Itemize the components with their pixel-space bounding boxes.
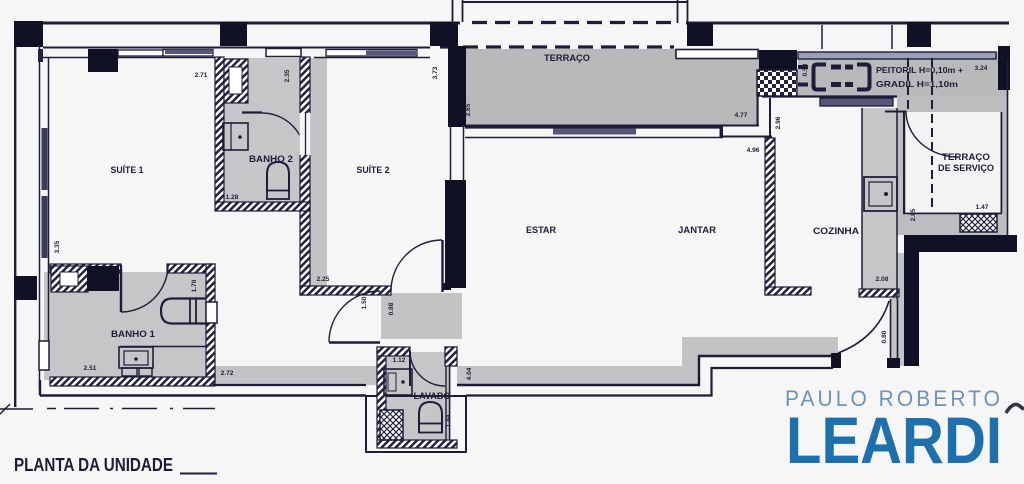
svg-text:3.73: 3.73 [432,66,439,79]
svg-text:2.35: 2.35 [284,69,291,82]
svg-text:TERRAÇO: TERRAÇO [544,53,590,64]
svg-text:BANHO 2: BANHO 2 [249,154,293,165]
svg-text:3.24: 3.24 [975,65,988,72]
svg-text:GRADIL H=1,10m: GRADIL H=1,10m [876,79,959,89]
svg-text:LAVABO: LAVABO [414,391,451,402]
svg-text:4.96: 4.96 [747,147,760,154]
svg-text:2.85: 2.85 [910,208,917,221]
svg-text:DE SERVIÇO: DE SERVIÇO [938,163,994,174]
svg-text:LEARDI: LEARDI [786,403,1002,477]
svg-text:2.25: 2.25 [317,276,330,283]
svg-text:COZINHA: COZINHA [813,226,859,237]
svg-text:PEITORIL H=0,10m +: PEITORIL H=0,10m + [876,65,963,75]
svg-text:2.72: 2.72 [221,370,234,377]
svg-text:0.88: 0.88 [388,302,395,315]
svg-text:SUÍTE 2: SUÍTE 2 [357,165,390,176]
svg-text:2.08: 2.08 [876,276,889,283]
svg-text:4.77: 4.77 [735,112,748,119]
svg-text:4.04: 4.04 [466,367,473,380]
svg-text:2.51: 2.51 [84,365,97,372]
svg-text:1.28: 1.28 [226,194,239,201]
svg-text:JANTAR: JANTAR [678,225,716,236]
svg-text:3.35: 3.35 [54,240,61,253]
svg-text:TERRAÇO: TERRAÇO [942,152,990,163]
svg-text:2.96: 2.96 [775,116,782,129]
svg-text:1.50: 1.50 [361,296,368,309]
svg-text:1.78: 1.78 [191,279,198,292]
svg-text:0.58: 0.58 [802,63,809,76]
svg-text:1.44: 1.44 [445,414,452,427]
svg-text:0.80: 0.80 [881,330,888,343]
svg-text:1.12: 1.12 [393,357,406,364]
svg-text:PLANTA DA UNIDADE: PLANTA DA UNIDADE [14,454,173,475]
svg-text:ESTAR: ESTAR [526,225,556,236]
svg-text:1.47: 1.47 [976,204,989,211]
svg-text:BANHO 1: BANHO 1 [111,329,156,340]
svg-text:2.71: 2.71 [195,72,208,79]
svg-text:2.65: 2.65 [465,103,472,116]
svg-text:SUÍTE 1: SUÍTE 1 [111,165,145,176]
